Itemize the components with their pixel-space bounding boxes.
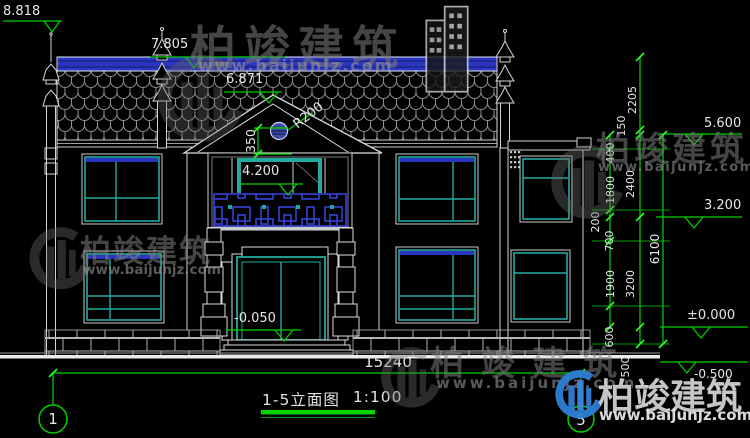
elevation-mark-6871: 6.871: [226, 73, 263, 87]
dim-200: 200: [589, 200, 603, 244]
elevation-mark-4200: 4.200: [242, 165, 279, 179]
elevation-mark-7805: 7.805: [151, 38, 188, 52]
title-underline: [261, 410, 375, 418]
window-annex-upper: [520, 156, 572, 222]
dim-600: 600: [603, 315, 617, 359]
dim-6100: 6100: [648, 227, 662, 271]
cad-elevation-screenshot: 8.818 7.805 6.871 4.200 -0.050 5.600 3.2…: [0, 0, 750, 438]
balcony: [208, 153, 352, 230]
window-upper-left: [82, 154, 162, 224]
elevation-mark-3200: 3.200: [704, 199, 741, 213]
drawing-scale: 1:100: [353, 388, 403, 410]
window-annex-lower: [511, 250, 570, 322]
dim-700: 700: [603, 219, 617, 263]
elevation-mark-entrance: -0.050: [234, 312, 276, 326]
dim-500: 500: [619, 345, 633, 389]
window-lower-right: [396, 247, 478, 323]
drawing-title-block: 1-5立面图 1:100: [262, 388, 403, 410]
entrance-pilaster-left: [201, 228, 227, 336]
dim-2400: 2400: [624, 162, 638, 206]
dim-1900: 1900: [604, 262, 618, 306]
ground-line: [0, 353, 660, 359]
dim-1800: 1800: [604, 168, 618, 212]
elevation-mark-zero: ±0.000: [687, 309, 735, 323]
axis-number-1: 1: [42, 410, 64, 428]
dim-350: 350: [244, 119, 258, 163]
window-upper-right: [396, 154, 478, 224]
entrance-pilaster-right: [333, 228, 359, 336]
drawing-title: 1-5立面图: [262, 388, 340, 410]
balcony-lattice-railing: [214, 194, 346, 226]
overall-width-dim: 15240: [352, 354, 424, 371]
elevation-mark-5600: 5.600: [704, 117, 741, 131]
eave-bracket-dots: [510, 151, 520, 168]
elevation-mark-neg-0500: -0.500: [694, 368, 733, 381]
axis-number-5: 5: [570, 411, 592, 429]
roof-finial-right: [496, 30, 514, 149]
elevation-drawing: [0, 0, 750, 438]
window-lower-left: [84, 251, 164, 323]
dim-3200: 3200: [624, 262, 638, 306]
elevation-mark-8818: 8.818: [3, 5, 40, 19]
